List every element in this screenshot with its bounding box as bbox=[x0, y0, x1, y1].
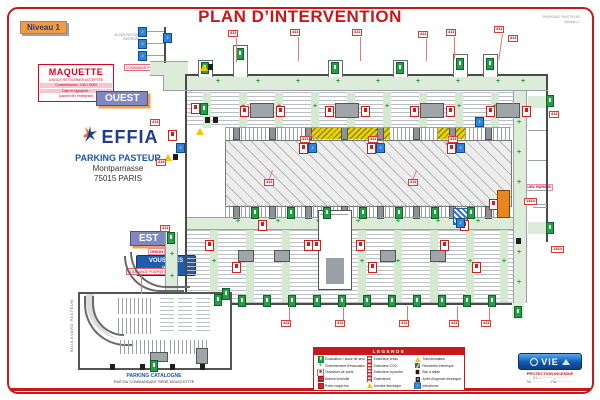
legend-item: +Cheminement d'évacuation bbox=[316, 363, 365, 370]
leader-line bbox=[343, 306, 344, 320]
equipment-black-icon bbox=[213, 117, 218, 123]
blue-icon: ♪ bbox=[415, 382, 421, 389]
legend-item-label: Arrêt d'urgence électrique bbox=[422, 377, 461, 381]
boulevard-pasteur-label: BOULEVARD PASTEUR bbox=[69, 299, 74, 352]
leader-line bbox=[407, 306, 408, 320]
wall-thin bbox=[150, 75, 164, 76]
wall-thin bbox=[146, 55, 164, 56]
accueil-parking-zone bbox=[497, 190, 510, 218]
legend-item-label: Extincteurs bbox=[374, 377, 391, 381]
aisle bbox=[394, 230, 402, 302]
extinguisher-icon bbox=[368, 262, 377, 273]
wall-thin bbox=[528, 130, 546, 131]
legend-item-label: Alarme incendie bbox=[325, 377, 349, 381]
equipment-black-icon bbox=[208, 64, 213, 70]
leader-line bbox=[498, 34, 503, 60]
pillar bbox=[335, 103, 359, 118]
leader-line bbox=[298, 37, 299, 61]
exit-icon bbox=[236, 48, 244, 60]
equipment-black-icon bbox=[110, 364, 115, 370]
legend-item: Remontée électrique bbox=[413, 363, 462, 370]
evac-plus-icon: + bbox=[395, 219, 401, 225]
legend-body: Evacuation / Issue de secours+Cheminemen… bbox=[314, 355, 464, 389]
equipment-tag: 411 bbox=[508, 35, 518, 42]
exit-icon bbox=[331, 62, 339, 74]
leader-line bbox=[360, 37, 361, 61]
equipment-black-icon bbox=[516, 238, 521, 244]
equipment-black-icon bbox=[140, 364, 145, 370]
legend-item: Alarme incendie bbox=[316, 376, 365, 383]
exit-icon bbox=[514, 306, 522, 318]
entry-corridor bbox=[150, 62, 188, 76]
interphone-icon: ♪ bbox=[475, 117, 484, 127]
pillar bbox=[420, 103, 444, 118]
pillar bbox=[380, 250, 396, 262]
legend-box: LEGENDE Evacuation / Issue de secours+Ch… bbox=[313, 347, 465, 391]
leader-line bbox=[454, 37, 455, 59]
evac-plus-icon: + bbox=[275, 219, 281, 225]
leader-line bbox=[457, 306, 458, 320]
tri-icon bbox=[415, 357, 421, 362]
wall-thin bbox=[225, 127, 511, 128]
exit-icon bbox=[323, 207, 331, 219]
evac-plus-icon: + bbox=[215, 79, 221, 85]
aisle bbox=[455, 92, 463, 128]
evac-plus-icon: + bbox=[495, 79, 501, 85]
wall-thin bbox=[528, 190, 546, 191]
extinguisher-icon bbox=[299, 143, 308, 154]
vie-triangle-icon bbox=[562, 359, 570, 365]
wall-thin bbox=[150, 61, 188, 62]
equipment-tag: 411 bbox=[368, 136, 378, 143]
legend-item: Extincteur CO2 bbox=[365, 363, 414, 370]
post bbox=[413, 127, 420, 140]
extinguisher-icon bbox=[276, 106, 285, 117]
extinguisher-icon bbox=[367, 143, 376, 154]
post bbox=[269, 127, 276, 140]
equipment-tag: 411 bbox=[399, 320, 409, 327]
tri-icon bbox=[366, 383, 372, 388]
plus-icon: + bbox=[317, 364, 323, 368]
evac-plus-icon: + bbox=[355, 219, 361, 225]
evac-plus-icon: + bbox=[312, 104, 318, 110]
wall-thin bbox=[163, 90, 548, 91]
alarm-icon bbox=[317, 383, 323, 389]
extinguisher-icon bbox=[168, 130, 177, 141]
equipment-tag: 411 bbox=[352, 29, 362, 36]
warning-triangle-icon bbox=[200, 64, 208, 71]
evac-plus-icon: + bbox=[255, 79, 261, 85]
extinguisher-icon bbox=[361, 106, 370, 117]
leader-line bbox=[141, 276, 142, 294]
interphone-icon: ♪ bbox=[456, 143, 465, 153]
exit-icon bbox=[486, 58, 494, 70]
exit-icon bbox=[251, 207, 259, 219]
legend-item-label: Evacuation / Issue de secours bbox=[325, 357, 365, 361]
legend-item: Arrêt d'urgence électrique bbox=[413, 376, 462, 383]
pillar bbox=[430, 250, 446, 262]
catalogne-stalls bbox=[118, 318, 154, 334]
exit-icon bbox=[150, 360, 158, 372]
vie-company-block: VIE PROTECTION INCENDIE Z.I. — ·········… bbox=[512, 353, 588, 384]
legend-item: Extincteur à poudre bbox=[365, 369, 414, 376]
aisle bbox=[246, 230, 254, 302]
legend-item-label: Interphone bbox=[422, 384, 438, 388]
exit-icon bbox=[438, 295, 446, 307]
exit-icon bbox=[313, 295, 321, 307]
evac-plus-icon: + bbox=[516, 280, 522, 286]
aisle bbox=[430, 230, 438, 302]
legend-column: Evacuation / Issue de secours+Cheminemen… bbox=[316, 356, 365, 389]
wall-thin bbox=[163, 76, 164, 90]
warning-triangle-icon bbox=[196, 128, 204, 135]
blk-icon bbox=[415, 370, 421, 374]
extinguisher-icon bbox=[356, 240, 365, 251]
evac-plus-icon: + bbox=[415, 79, 421, 85]
pillar bbox=[250, 103, 274, 118]
extinguisher-icon bbox=[205, 240, 214, 251]
legend-item: Extincteur à eau bbox=[365, 356, 414, 363]
right-exit-branch bbox=[528, 222, 546, 234]
exit-icon bbox=[338, 295, 346, 307]
extinguisher-icon bbox=[325, 106, 334, 117]
ria-icon bbox=[317, 369, 323, 376]
catalogne-stalls bbox=[118, 298, 154, 314]
legend-item: Transformateur bbox=[413, 356, 462, 363]
exit-icon bbox=[214, 294, 222, 306]
evac-plus-icon: + bbox=[516, 150, 522, 156]
extinguisher-icon bbox=[312, 240, 321, 251]
aisle bbox=[500, 230, 508, 302]
equipment-tag: 411 bbox=[264, 179, 274, 186]
legend-item-label: Extincteur à poudre bbox=[374, 370, 403, 374]
catalogne-stalls bbox=[178, 298, 192, 334]
equipment-tag: 411 bbox=[408, 179, 418, 186]
exit-icon bbox=[200, 103, 208, 115]
equipment-tag: 411 bbox=[156, 159, 166, 166]
interphone-icon: ♪ bbox=[138, 39, 147, 49]
exit-icon bbox=[388, 295, 396, 307]
extinguisher-icon bbox=[191, 103, 200, 114]
extinguisher-icon bbox=[440, 240, 449, 251]
extinguisher-icon bbox=[489, 199, 498, 210]
legend-column: TransformateurRemontée électriqueBac à s… bbox=[413, 356, 462, 389]
evac-plus-icon: + bbox=[516, 180, 522, 186]
vie-name: VIE bbox=[541, 357, 559, 367]
pillar bbox=[238, 250, 254, 262]
exit-icon bbox=[222, 288, 230, 300]
legend-item: Ouverture de porte bbox=[316, 369, 365, 376]
extinguisher-icon bbox=[258, 220, 267, 231]
equipment-black-icon bbox=[200, 364, 205, 370]
evac-plus-icon: + bbox=[475, 219, 481, 225]
evac-plus-icon: + bbox=[516, 120, 522, 126]
equipment-tag: 411 bbox=[228, 30, 238, 37]
extinguisher-icon bbox=[472, 262, 481, 273]
interphone-icon: ♪ bbox=[376, 143, 385, 153]
extinguisher-icon bbox=[240, 106, 249, 117]
exit-icon bbox=[546, 222, 554, 234]
evac-plus-icon: + bbox=[335, 79, 341, 85]
legend-item: Extincteurs bbox=[365, 376, 414, 383]
equipment-tag: 1414 bbox=[524, 198, 537, 205]
alarm-icon bbox=[317, 376, 323, 382]
legend-item: Porte coupe-feu bbox=[316, 382, 365, 389]
equipment-tag: 411 bbox=[160, 225, 170, 232]
leader-line bbox=[489, 306, 490, 320]
interphone-icon: ♪ bbox=[176, 143, 185, 153]
exit-icon bbox=[546, 95, 554, 107]
exit-icon bbox=[456, 58, 464, 70]
exit-icon bbox=[359, 207, 367, 219]
exit-icon bbox=[287, 207, 295, 219]
legend-item-label: Armoire électrique bbox=[374, 384, 402, 388]
legend-item: ♪Interphone bbox=[413, 382, 462, 389]
vie-ring-icon bbox=[530, 358, 538, 366]
vie-line3: Tél. : ·· ·· ·· ·· ·· - Fax : ·· ·· ·· ·… bbox=[512, 380, 588, 384]
evac-plus-icon: + bbox=[516, 250, 522, 256]
equipment-black-icon bbox=[170, 364, 175, 370]
exit-icon bbox=[317, 356, 323, 363]
pillar bbox=[196, 348, 208, 364]
extinguisher-icon bbox=[232, 262, 241, 273]
exit-icon bbox=[395, 207, 403, 219]
interphone-icon: ♪ bbox=[138, 27, 147, 37]
wall-thin bbox=[528, 160, 546, 161]
evac-plus-icon: + bbox=[384, 104, 390, 110]
equipment-tag: 411 bbox=[418, 31, 428, 38]
floor-plan: ++++++++++++++++++++++++++++++++++++++++… bbox=[0, 0, 600, 400]
aisle bbox=[383, 92, 391, 128]
interphone-icon: ♪ bbox=[163, 33, 172, 43]
wall-thin bbox=[146, 43, 164, 44]
vie-logo: VIE bbox=[518, 353, 582, 370]
exit-icon bbox=[263, 295, 271, 307]
equipment-tag: 411 bbox=[449, 320, 459, 327]
equipment-tag: 411 bbox=[300, 136, 310, 143]
legend-item: Bac à sable bbox=[413, 369, 462, 376]
exit-icon bbox=[467, 207, 475, 219]
interphone-icon: ♪ bbox=[308, 143, 317, 153]
exit-icon bbox=[463, 295, 471, 307]
ext-icon bbox=[366, 356, 372, 363]
exit-icon bbox=[396, 62, 404, 74]
evac-plus-icon: + bbox=[455, 79, 461, 85]
legend-item: Evacuation / Issue de secours bbox=[316, 356, 365, 363]
legend-item-label: Ouverture de porte bbox=[325, 370, 353, 374]
leader-line bbox=[426, 39, 427, 61]
ext-icon bbox=[366, 363, 372, 370]
legend-item-label: Bac à sable bbox=[422, 370, 440, 374]
equipment-tag: 411 bbox=[494, 26, 504, 33]
exit-icon bbox=[238, 295, 246, 307]
equipment-tag: 411 bbox=[481, 320, 491, 327]
ext-icon bbox=[366, 376, 372, 383]
stair-core-block bbox=[326, 258, 344, 284]
evac-plus-icon: + bbox=[235, 219, 241, 225]
equipment-tag: 1414 bbox=[551, 246, 564, 253]
wall-thin bbox=[146, 31, 164, 32]
parking-catalogne-label: PARKING CATALOGNE bbox=[92, 373, 216, 379]
evac-plus-icon: + bbox=[359, 259, 365, 265]
equipment-tag: 411 bbox=[281, 320, 291, 327]
exit-icon bbox=[413, 295, 421, 307]
ext-icon bbox=[366, 369, 372, 376]
evac-plus-icon: + bbox=[520, 79, 526, 85]
legend-item-label: Cheminement d'évacuation bbox=[325, 364, 365, 368]
exit-icon bbox=[363, 295, 371, 307]
equipment-tag: 411 bbox=[335, 320, 345, 327]
cut-icon bbox=[415, 377, 421, 382]
evac-plus-icon: + bbox=[435, 219, 441, 225]
equipment-black-icon bbox=[205, 117, 210, 123]
aisle bbox=[282, 230, 290, 302]
post bbox=[233, 127, 240, 140]
evac-plus-icon: + bbox=[501, 259, 507, 265]
wall-thin bbox=[513, 90, 514, 303]
post bbox=[485, 127, 492, 140]
legend-item-label: Transformateur bbox=[422, 357, 445, 361]
legend-item-label: Extincteur CO2 bbox=[374, 364, 397, 368]
catalogne-stalls bbox=[160, 298, 174, 334]
leader-line bbox=[236, 38, 237, 62]
extinguisher-icon bbox=[522, 106, 531, 117]
evac-plus-icon: + bbox=[456, 104, 462, 110]
extinguisher-icon bbox=[410, 106, 419, 117]
equipment-black-icon bbox=[173, 154, 178, 160]
interphone-icon: ♪ bbox=[456, 218, 465, 228]
extinguisher-icon bbox=[446, 106, 455, 117]
evac-plus-icon: + bbox=[211, 259, 217, 265]
equipment-tag: 411 bbox=[549, 111, 559, 118]
equipment-tag: 411 bbox=[150, 119, 160, 126]
legend-column: Extincteur à eauExtincteur CO2Extincteur… bbox=[365, 356, 414, 389]
wall-thin bbox=[533, 207, 547, 208]
legend-title: LEGENDE bbox=[314, 348, 464, 355]
legend-item-label: Extincteur à eau bbox=[374, 357, 399, 361]
interphone-icon: ♪ bbox=[138, 51, 147, 61]
aisle bbox=[311, 92, 319, 128]
wall-thin bbox=[526, 90, 527, 303]
pillar bbox=[496, 103, 520, 118]
legend-item-label: Remontée électrique bbox=[422, 364, 453, 368]
legend-item: Armoire électrique bbox=[365, 382, 414, 389]
leader-line bbox=[289, 306, 290, 320]
equipment-tag: 411 bbox=[290, 29, 300, 36]
legend-item-label: Porte coupe-feu bbox=[325, 384, 349, 388]
catalogne-stalls bbox=[196, 298, 210, 334]
exit-icon bbox=[431, 207, 439, 219]
pillar bbox=[274, 250, 290, 262]
post bbox=[341, 127, 348, 140]
evac-plus-icon: + bbox=[375, 79, 381, 85]
evac-plus-icon: + bbox=[295, 79, 301, 85]
extinguisher-icon bbox=[447, 143, 456, 154]
exit-icon bbox=[167, 232, 175, 244]
rue-mouchotte-label: RUE DU COMMANDANT RENÉ MOUCHOTTE bbox=[80, 380, 228, 384]
extinguisher-icon bbox=[486, 106, 495, 117]
elec-icon bbox=[415, 363, 421, 368]
equipment-tag: 411 bbox=[446, 29, 456, 36]
